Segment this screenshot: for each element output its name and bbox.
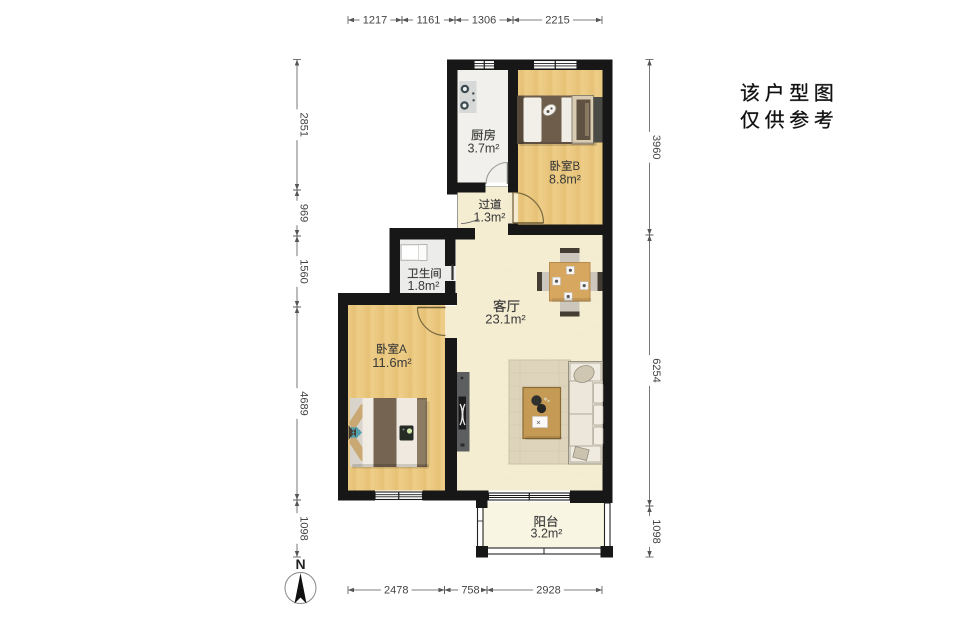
- svg-text:758: 758: [461, 585, 479, 597]
- svg-text:3960: 3960: [650, 135, 662, 159]
- svg-text:1.8m²: 1.8m²: [408, 279, 440, 293]
- svg-text:4689: 4689: [298, 391, 310, 415]
- svg-text:23.1m²: 23.1m²: [485, 312, 526, 327]
- svg-text:1098: 1098: [298, 516, 310, 540]
- svg-text:1560: 1560: [298, 259, 310, 283]
- svg-text:1098: 1098: [650, 519, 662, 543]
- svg-text:2928: 2928: [536, 585, 560, 597]
- svg-text:8.8m²: 8.8m²: [549, 173, 581, 187]
- svg-text:1217: 1217: [363, 15, 387, 27]
- svg-text:2478: 2478: [384, 585, 408, 597]
- svg-text:1306: 1306: [472, 15, 496, 27]
- svg-text:11.6m²: 11.6m²: [372, 355, 412, 370]
- svg-text:2851: 2851: [298, 113, 310, 137]
- svg-text:3.7m²: 3.7m²: [468, 142, 500, 156]
- svg-text:N: N: [295, 556, 305, 572]
- svg-text:1.3m²: 1.3m²: [474, 211, 506, 225]
- svg-text:969: 969: [298, 204, 310, 222]
- svg-text:2215: 2215: [545, 15, 569, 27]
- svg-text:3.2m²: 3.2m²: [531, 527, 563, 541]
- svg-text:6254: 6254: [650, 358, 662, 382]
- svg-text:B: B: [573, 161, 581, 173]
- svg-text:1161: 1161: [417, 15, 441, 27]
